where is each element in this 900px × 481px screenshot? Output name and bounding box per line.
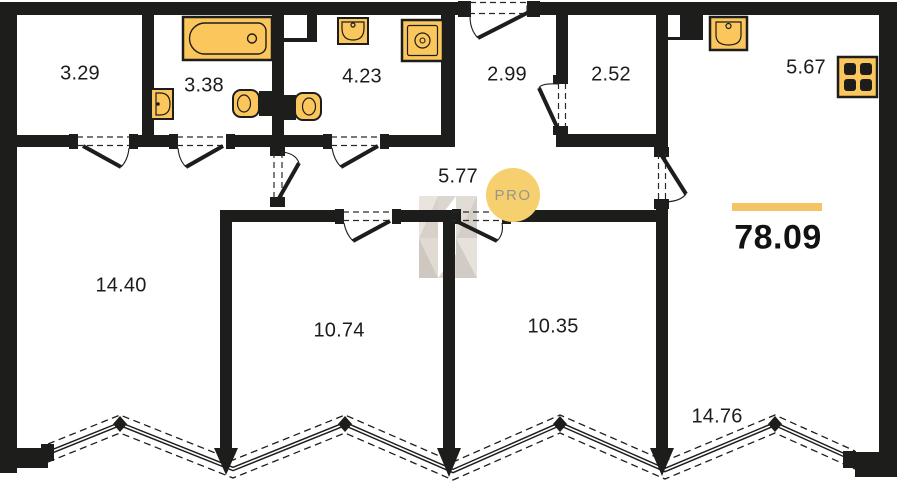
room-area-label: 10.35 (527, 316, 578, 339)
room-area-label: 14.40 (95, 275, 146, 298)
room-area-label: 5.67 (786, 57, 826, 80)
wall-sink-icon (151, 89, 173, 119)
toilet-icon (284, 93, 321, 120)
room-area-label: 14.76 (691, 406, 742, 429)
floor-plan: 3.29 3.38 4.23 2.99 2.52 5.67 5.77 14.40… (0, 0, 900, 481)
sink-icon (338, 18, 368, 44)
toilet-icon (233, 90, 272, 117)
bathtub-icon (183, 17, 272, 60)
room-area-label: 10.74 (313, 320, 364, 343)
doors (83, 12, 686, 241)
room-area-label: 3.38 (184, 75, 224, 98)
room-area-label: 5.77 (438, 166, 478, 189)
kitchen-sink-icon (710, 17, 747, 50)
total-area-accent-bar (732, 203, 822, 211)
stove-icon (838, 57, 877, 97)
room-area-label: 2.99 (487, 64, 527, 87)
room-area-label: 4.23 (342, 66, 382, 89)
room-area-label: 2.52 (591, 64, 631, 87)
total-area-value: 78.09 (734, 219, 822, 258)
room-area-label: 3.29 (60, 63, 100, 86)
washing-machine-icon (402, 20, 443, 61)
pro-logo-badge: PRO (486, 168, 540, 222)
